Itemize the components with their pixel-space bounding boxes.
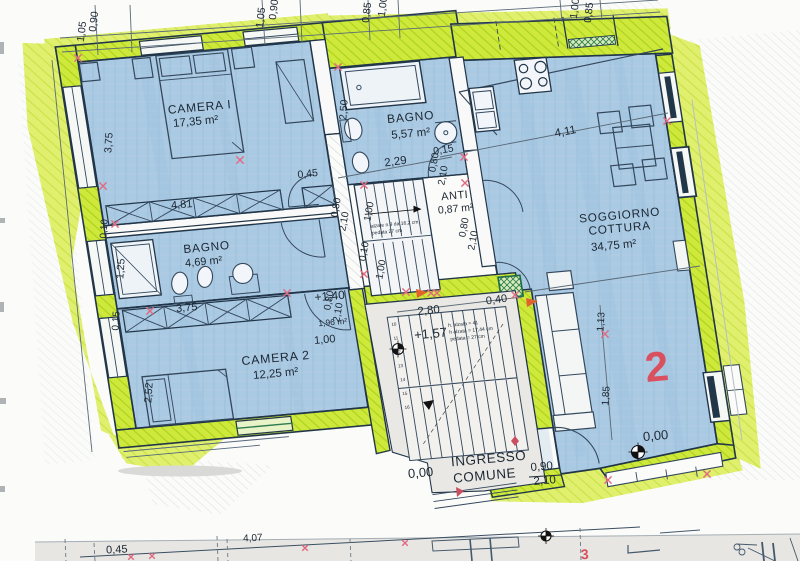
svg-text:4,07: 4,07: [243, 532, 263, 544]
svg-text:3,75: 3,75: [102, 132, 115, 153]
svg-text:1,13: 1,13: [595, 311, 607, 332]
svg-text:0,85: 0,85: [360, 2, 374, 24]
svg-text:2,52: 2,52: [142, 382, 155, 403]
svg-text:12: 12: [396, 349, 402, 354]
svg-text:4,81: 4,81: [171, 198, 193, 212]
svg-text:1,00: 1,00: [314, 333, 336, 347]
svg-text:0,90: 0,90: [87, 11, 101, 33]
svg-text:3: 3: [580, 546, 589, 561]
svg-text:0,90: 0,90: [267, 0, 281, 21]
svg-text:10: 10: [391, 322, 397, 327]
svg-text:0,45: 0,45: [297, 167, 319, 181]
svg-text:2,80: 2,80: [417, 304, 441, 318]
svg-text:1,05: 1,05: [254, 7, 268, 29]
svg-text:0,00: 0,00: [407, 464, 434, 481]
svg-text:+1,57: +1,57: [414, 325, 448, 343]
svg-text:1,25: 1,25: [114, 258, 127, 279]
svg-text:1,05: 1,05: [75, 21, 89, 43]
svg-text:3,75: 3,75: [176, 301, 198, 315]
svg-text:0,45: 0,45: [106, 543, 128, 556]
svg-text:0,10: 0,10: [98, 218, 110, 239]
svg-text:2,50: 2,50: [337, 99, 350, 120]
svg-text:0,85: 0,85: [582, 2, 596, 24]
svg-text:1,00: 1,00: [568, 0, 582, 20]
svg-text:14: 14: [400, 377, 406, 382]
svg-text:15: 15: [402, 391, 408, 396]
svg-text:13: 13: [398, 363, 404, 368]
svg-text:0,90: 0,90: [530, 460, 553, 474]
svg-text:ANTI: ANTI: [441, 189, 469, 203]
svg-text:1,85: 1,85: [600, 385, 612, 406]
svg-text:0,15: 0,15: [110, 310, 122, 331]
svg-text:16: 16: [404, 405, 410, 410]
svg-text:2: 2: [643, 342, 671, 391]
svg-text:0,00: 0,00: [642, 427, 669, 444]
